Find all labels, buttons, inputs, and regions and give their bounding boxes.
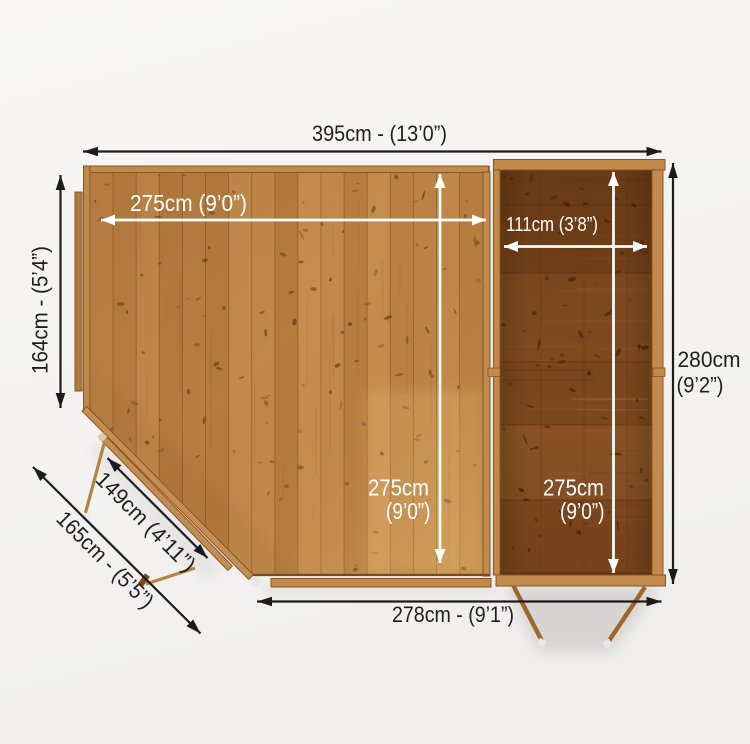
svg-text:395cm - (13’0”): 395cm - (13’0”) <box>312 121 447 146</box>
svg-text:280cm: 280cm <box>678 347 741 372</box>
svg-text:275cm (9’0”): 275cm (9’0”) <box>130 190 247 216</box>
svg-text:(9’2”): (9’2”) <box>677 373 724 398</box>
svg-text:278cm - (9’1”): 278cm - (9’1”) <box>392 602 514 627</box>
svg-text:164cm - (5’4”): 164cm - (5’4”) <box>28 246 53 374</box>
svg-text:(9’0”): (9’0”) <box>386 498 431 524</box>
svg-text:275cm: 275cm <box>368 475 429 501</box>
svg-text:275cm: 275cm <box>543 475 604 501</box>
svg-text:(9’0”): (9’0”) <box>560 498 605 524</box>
svg-text:111cm (3’8”): 111cm (3’8”) <box>506 214 598 236</box>
